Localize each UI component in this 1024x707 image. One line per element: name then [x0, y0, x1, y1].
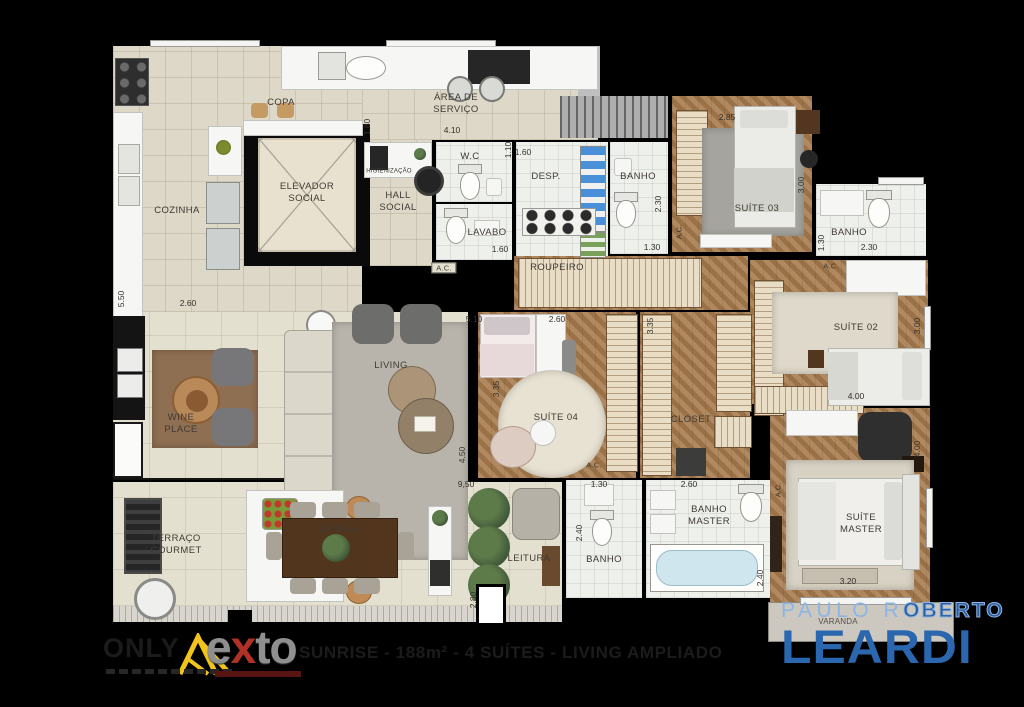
dim-living-h: 4.50 — [457, 447, 467, 464]
floor-plan: COPA COZINHA ÁREA DE SERVIÇO ELEVADOR SO… — [0, 0, 1024, 707]
dining-chair-5 — [322, 578, 348, 594]
hall-basin — [414, 166, 444, 196]
copa-bar — [243, 120, 363, 136]
duct-corridor — [560, 96, 668, 138]
dim-living-w: 5.10 — [466, 314, 483, 324]
exto-logo: exto — [206, 620, 297, 674]
label-banho-social: BANHO — [586, 554, 622, 566]
dining-centerpiece — [322, 534, 350, 562]
banho-social-toilet — [592, 518, 612, 546]
leardi-logo: PAULO ROBERTO LEARDI — [781, 599, 1019, 674]
chaise — [512, 488, 560, 540]
banho-master-toilet — [740, 492, 762, 522]
label-ac-suite02: A.C. — [823, 261, 838, 270]
banho-meio-toilet — [616, 200, 636, 228]
label-ac-suite04: A.C. — [586, 460, 601, 469]
kitchen-sink — [118, 144, 140, 174]
dim-banho-master-h: 2.40 — [755, 570, 765, 587]
wc-toilet — [460, 172, 480, 200]
wine-tray — [186, 390, 208, 412]
bathtub-water — [656, 550, 758, 586]
suite-master-dresser — [786, 410, 858, 436]
label-wine-place: WINE PLACE — [164, 412, 197, 436]
leitura-plant-2 — [468, 526, 510, 568]
exto-letters-to: to — [255, 621, 296, 673]
closet-wardrobe-left — [642, 314, 672, 476]
dim-servico-height: 1.80 — [362, 119, 372, 136]
dim-suite03-h: 3.00 — [796, 177, 806, 194]
dim-suite-master-h: 4.00 — [912, 441, 922, 458]
dim-banho-s03-w: 2.30 — [861, 242, 878, 252]
banho-master-sink — [650, 490, 676, 510]
dim-suite02-h: 3.00 — [912, 318, 922, 335]
banho-s03-counter — [820, 190, 864, 216]
label-cozinha: COZINHA — [154, 205, 200, 217]
window-suite02-right — [924, 306, 931, 350]
hall-plant — [414, 148, 426, 160]
label-lavabo: LAVABO — [467, 227, 506, 239]
suite04-chair — [562, 340, 576, 374]
label-copa: COPA — [267, 97, 295, 109]
dining-chair-3 — [354, 502, 380, 518]
suite-master-blanket — [798, 482, 836, 560]
label-suite04: SUÍTE 04 — [534, 412, 578, 424]
exto-letter-e: e — [206, 621, 231, 673]
leitura-shelf — [542, 546, 560, 586]
living-armchair-2 — [400, 304, 442, 344]
kitchen-cabinet-glass — [206, 182, 240, 224]
project-title: SUNRISE - 188m² - 4 SUÍTES - LIVING AMPL… — [299, 643, 722, 663]
exto-letter-x: x — [231, 621, 256, 673]
dim-jantar-w: 9,50 — [458, 479, 475, 489]
cooktop — [115, 58, 149, 106]
suite04-wardrobe — [606, 314, 638, 472]
service-hatch-door — [476, 584, 506, 626]
dim-suite04-w: 2.60 — [549, 314, 566, 324]
label-hall: HALL SOCIAL — [379, 190, 416, 214]
washer-2 — [479, 76, 505, 102]
closet-dresser — [676, 448, 706, 476]
suite03-pillow — [740, 110, 788, 128]
label-roupeiro: ROUPEIRO — [530, 262, 584, 274]
label-ac-suite-master: A.C. — [774, 483, 783, 498]
living-armchair — [352, 304, 394, 344]
dim-banho-meio-w: 1.30 — [644, 242, 661, 252]
dim-banho-s03-h: 1.30 — [816, 235, 826, 252]
dining-chair — [290, 502, 316, 518]
dim-leitura-h: 2.80 — [468, 592, 478, 609]
dim-banho-social-h: 2.40 — [574, 525, 584, 542]
suite-master-pillows — [884, 482, 902, 560]
label-banho-meio: BANHO — [620, 171, 656, 183]
counter-box — [430, 560, 450, 586]
label-terraco: TERRAÇO GOURMET — [150, 533, 201, 557]
label-leitura: LEITURA — [508, 553, 551, 565]
suite03-bench — [700, 234, 772, 248]
oven — [117, 348, 143, 372]
dining-chair-2 — [322, 502, 348, 518]
kitchen-sink-2 — [118, 176, 140, 206]
dim-banho-master-w: 2.60 — [681, 479, 698, 489]
wine-rack — [522, 208, 596, 236]
copa-stool — [251, 103, 268, 118]
leitura-plant — [468, 488, 510, 530]
dim-wc: 1.10 — [503, 142, 513, 159]
dining-chair-8 — [398, 532, 414, 560]
suite02-pillow — [902, 352, 922, 400]
label-banho-master: BANHO MASTER — [688, 504, 730, 528]
dim-suite-master-w: 3.20 — [840, 576, 857, 586]
label-suite02: SUÍTE 02 — [834, 322, 878, 334]
banho-master-sink-2 — [650, 514, 676, 534]
label-wc: W.C — [460, 151, 479, 163]
label-desp: DESP. — [531, 171, 560, 183]
exto-tagline-bar — [215, 671, 301, 677]
suite04-pillow — [484, 317, 530, 335]
lavabo-toilet — [446, 216, 466, 244]
label-higienizacao: HIGIENIZAÇÃO — [366, 168, 411, 176]
dim-suite03-w: 2.85 — [719, 112, 736, 122]
higienizacao-appliance — [370, 146, 388, 170]
dim-cozinha-width: 2.60 — [180, 298, 197, 308]
dining-chair-7 — [266, 532, 282, 560]
label-banho-suite03: BANHO — [831, 227, 867, 239]
dim-desp: 1.60 — [515, 147, 532, 157]
wine-armchair — [212, 348, 254, 386]
window-suite-master-right — [926, 488, 933, 548]
dining-chair-4 — [290, 578, 316, 594]
counter-plant — [432, 510, 448, 526]
label-ac-hall: A.C. — [431, 262, 456, 273]
suite-master-headboard — [902, 474, 920, 570]
suite-master-tv-cabinet — [770, 516, 782, 572]
suite-master-armchair — [858, 412, 912, 462]
terrace-door — [113, 422, 143, 478]
broker-last-name: LEARDI — [781, 619, 1024, 674]
dim-closet-h: 3.35 — [645, 318, 655, 335]
suite04-blanket — [480, 344, 534, 376]
label-living: LIVING — [374, 360, 408, 372]
dim-servico-width: 4.10 — [444, 125, 461, 135]
dim-banho-social-w: 1.30 — [591, 479, 608, 489]
wine-armchair-2 — [212, 408, 254, 446]
dim-banho-meio-h: 2.30 — [653, 196, 663, 213]
closet-wardrobe-right — [716, 314, 752, 412]
suite02-nightstand — [808, 350, 824, 368]
dining-chair-6 — [354, 578, 380, 594]
suite03-nightstand — [796, 110, 820, 134]
dim-cozinha-height: 5.50 — [116, 291, 126, 308]
fruit-bowl — [216, 140, 231, 155]
label-suite-master: SUÍTE MASTER — [840, 512, 882, 536]
wc-sink — [486, 178, 502, 196]
suite03-stool — [800, 150, 818, 168]
label-suite03: SUÍTE 03 — [735, 203, 779, 215]
kitchen-cabinet-glass-2 — [206, 228, 240, 270]
dim-suite04-h: 3.35 — [491, 381, 501, 398]
label-elevador: ELEVADOR SOCIAL — [280, 181, 334, 205]
microwave — [117, 374, 143, 398]
label-jantar: JANTAR — [319, 524, 358, 536]
window-top-copa — [150, 40, 260, 47]
terrace-basin — [134, 578, 176, 620]
dim-lavabo: 1.60 — [492, 244, 509, 254]
closet-wardrobe-corner — [714, 416, 752, 448]
window-banho-suite03 — [878, 177, 924, 185]
only-wordmark: ONLY — [103, 633, 180, 664]
coffee-table-book — [414, 416, 436, 432]
service-oval-sink — [346, 56, 386, 80]
banho-s03-toilet — [868, 198, 890, 228]
dim-suite02-w: 4.00 — [848, 391, 865, 401]
label-closet: CLOSET — [671, 414, 711, 426]
label-ac-suite03: A.C. — [675, 225, 684, 240]
fridge — [318, 52, 346, 80]
suite02-desk — [846, 260, 926, 296]
label-area-servico: ÁREA DE SERVIÇO — [433, 92, 478, 116]
